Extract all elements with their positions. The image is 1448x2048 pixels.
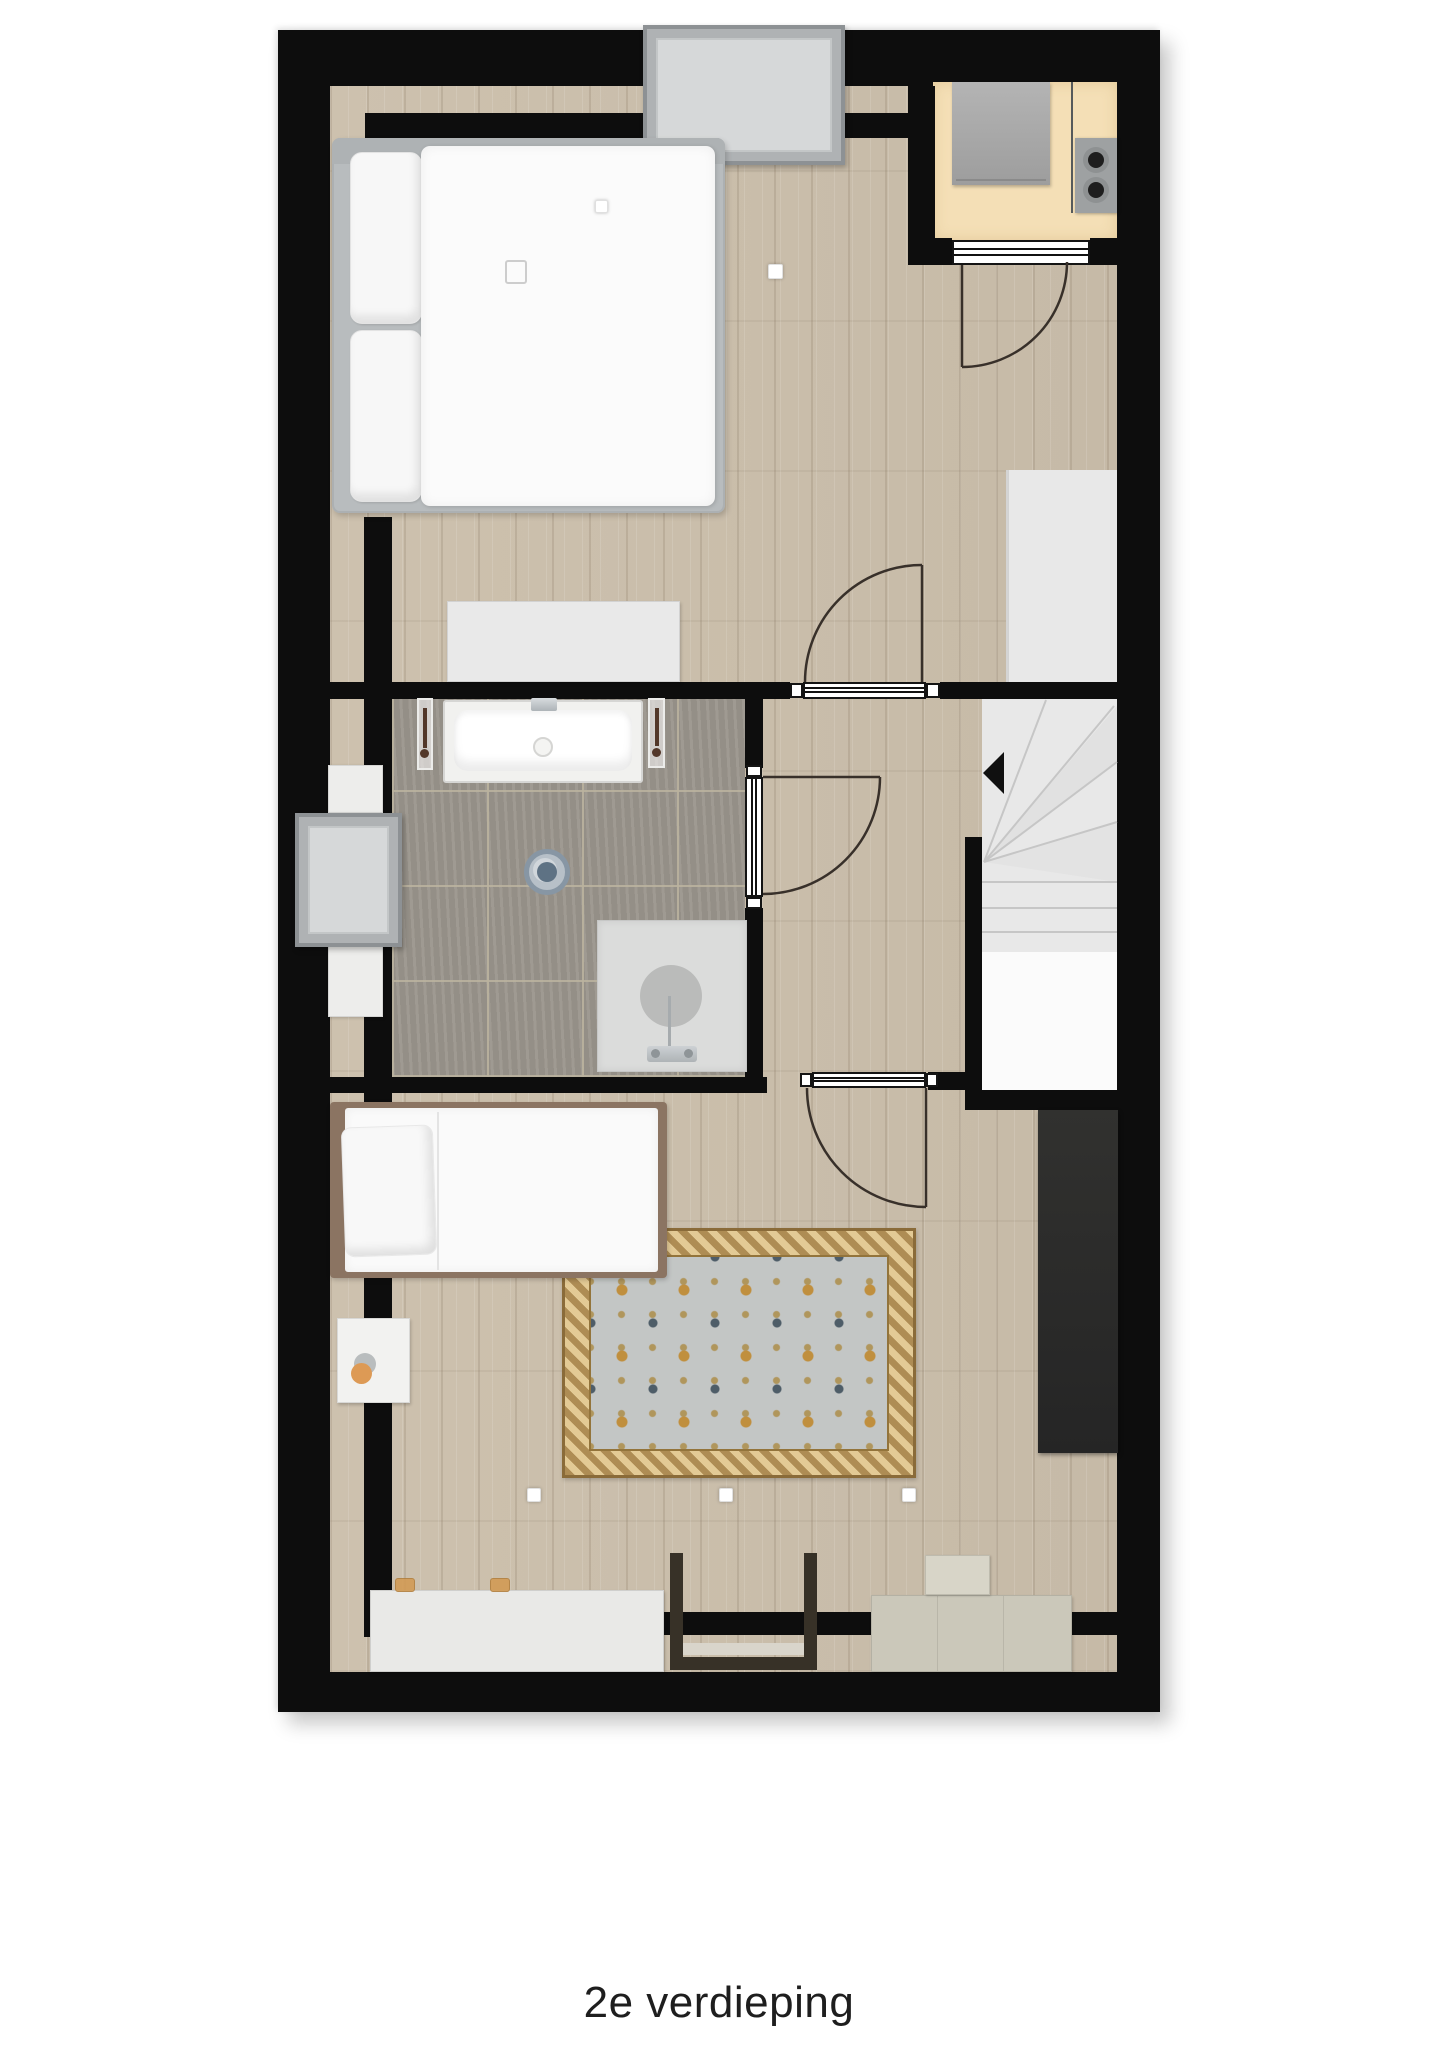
wall-stair-bottom (965, 1090, 1160, 1110)
desk-bedroom-2 (370, 1590, 664, 1672)
wardrobe-dark (1038, 1110, 1118, 1453)
jamb-bathroom-bottom (746, 897, 762, 909)
bath-cabinet-upper (328, 765, 383, 813)
desk-glass-b (490, 1578, 510, 1592)
knee-wall-top-right (845, 113, 908, 138)
jamb-bedroom-1-right (926, 683, 940, 698)
dormer-window-left (295, 813, 402, 947)
wall-bed1-bath-right (940, 682, 1117, 699)
desk-glass-a (395, 1578, 415, 1592)
downlight-bedroom-2-c (902, 1488, 916, 1502)
laundry-tap-panel (1075, 138, 1117, 213)
bathtub-drain (533, 737, 553, 757)
jamb-bedroom-1-left (790, 683, 803, 698)
bath-cabinet-lower (328, 945, 383, 1017)
dresser-2-box (925, 1555, 990, 1595)
floorplan-page: 2e verdieping (0, 0, 1448, 2048)
wall-bath-bottom (330, 1077, 767, 1093)
wall-stair-left (965, 837, 982, 1110)
towel-rail-right (648, 698, 665, 768)
jamb-bathroom-top (746, 765, 762, 777)
knee-wall-top-left (365, 113, 643, 138)
downlight-bedroom-1 (595, 200, 608, 213)
wall-bath-hall-lower (745, 908, 763, 1077)
downlight-bedroom-2-a (527, 1488, 541, 1502)
wall-bath-hall-upper (745, 698, 763, 768)
dresser-bedroom-2 (871, 1595, 1072, 1672)
clothes-rack (670, 1553, 817, 1670)
dresser-bedroom-1 (447, 601, 680, 682)
jamb-bedroom-2-right (926, 1073, 938, 1087)
shower-pole (668, 996, 671, 1052)
washing-machine (952, 82, 1050, 185)
bed-2-duvet-fold (437, 1112, 439, 1270)
closet-divider-line (1071, 82, 1073, 213)
stairwell-lower-floor (982, 952, 1117, 1090)
threshold-bedroom-1-door (803, 682, 926, 699)
towel-rail-left (417, 698, 433, 770)
wall-closet-left (908, 86, 935, 265)
shower-mixer (647, 1046, 697, 1062)
downlight-bedroom-2-b (719, 1488, 733, 1502)
jamb-bedroom-2-left (800, 1073, 812, 1087)
bed-1-pillow-lower (350, 330, 422, 502)
wall-closet-stub-right (1090, 238, 1117, 265)
nightstand (337, 1318, 410, 1403)
wall-bed1-bath-left (330, 682, 790, 699)
downlight-landing (768, 264, 783, 279)
closet-folding-door (952, 240, 1090, 265)
bed-2-pillow (341, 1124, 437, 1257)
threshold-bathroom-door (745, 777, 763, 897)
stair-void (1007, 470, 1117, 682)
floor-caption: 2e verdieping (278, 1978, 1160, 2028)
bed-1-duvet (421, 146, 715, 506)
floor-drain (524, 849, 570, 895)
bathtub-faucet (531, 698, 557, 711)
threshold-bedroom-2-door (812, 1072, 926, 1088)
bed-1-pillow-upper (350, 152, 422, 324)
wall-closet-stub-left (935, 238, 952, 265)
